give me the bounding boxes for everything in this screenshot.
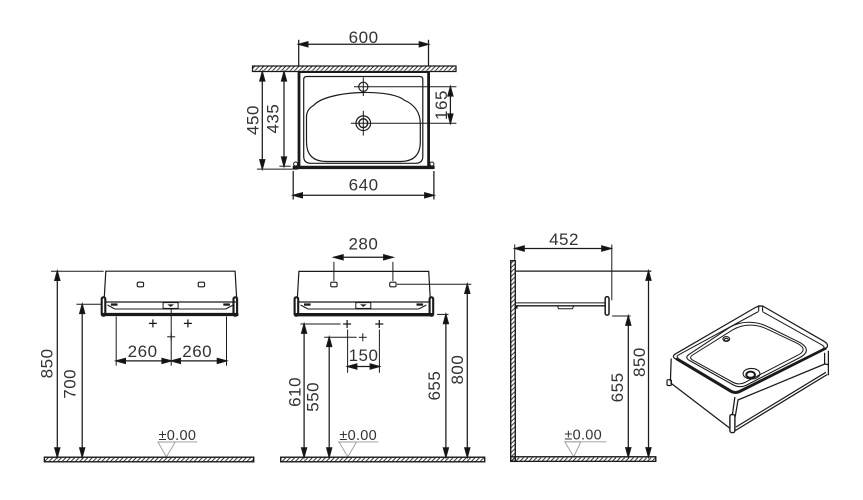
svg-text:610: 610 <box>286 377 305 407</box>
svg-text:550: 550 <box>303 382 322 412</box>
svg-text:640: 640 <box>349 176 379 195</box>
svg-text:700: 700 <box>61 369 80 399</box>
svg-text:452: 452 <box>549 230 579 249</box>
svg-text:280: 280 <box>348 235 378 254</box>
svg-text:450: 450 <box>244 105 263 135</box>
svg-text:260: 260 <box>128 342 158 361</box>
svg-text:800: 800 <box>448 355 467 385</box>
svg-text:435: 435 <box>264 104 283 134</box>
svg-text:±0.00: ±0.00 <box>564 428 602 444</box>
svg-text:150: 150 <box>349 346 379 365</box>
svg-text:850: 850 <box>630 347 649 377</box>
svg-text:165: 165 <box>432 90 451 120</box>
svg-text:600: 600 <box>349 28 379 47</box>
svg-text:260: 260 <box>182 342 212 361</box>
svg-text:850: 850 <box>38 348 57 378</box>
svg-text:655: 655 <box>608 372 627 402</box>
svg-text:655: 655 <box>425 371 444 401</box>
